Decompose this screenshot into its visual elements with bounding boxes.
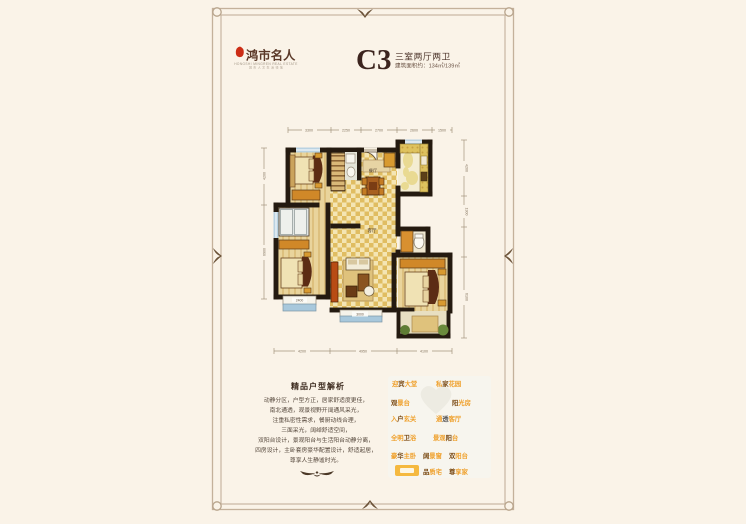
svg-text:通透客厅: 通透客厅: [436, 414, 462, 423]
svg-text:四房设计，主卧套房豪华配置设计，舒适起居，: 四房设计，主卧套房豪华配置设计，舒适起居，: [255, 446, 377, 454]
svg-text:城 市 人 文 生 活 领 地: 城 市 人 文 生 活 领 地: [249, 65, 283, 70]
svg-text:三面采光，阔绰舒适空间，: 三面采光，阔绰舒适空间，: [281, 426, 351, 434]
svg-text:注重私密性需求，餐厨动线合理，: 注重私密性需求，餐厨动线合理，: [273, 416, 360, 424]
svg-text:4200: 4200: [298, 349, 306, 353]
svg-text:入户玄关: 入户玄关: [391, 414, 417, 423]
svg-text:6900: 6900: [262, 248, 266, 256]
svg-text:建筑面积约：134㎡/139㎡: 建筑面积约：134㎡/139㎡: [395, 62, 460, 70]
svg-text:1500: 1500: [438, 128, 446, 132]
svg-text:南北通透，观景视野开阔通风采光，: 南北通透，观景视野开阔通风采光，: [270, 406, 363, 414]
svg-text:1300: 1300: [464, 208, 468, 216]
svg-text:3000: 3000: [356, 313, 364, 317]
svg-text:迎宾大堂: 迎宾大堂: [392, 379, 418, 388]
svg-text:2400: 2400: [296, 299, 304, 303]
svg-text:餐厅: 餐厅: [369, 167, 377, 174]
svg-text:鸿市名人: 鸿市名人: [246, 48, 296, 63]
svg-text:2250: 2250: [342, 128, 350, 132]
svg-text:尊享人生静谧时光。: 尊享人生静谧时光。: [290, 456, 342, 464]
svg-text:2600: 2600: [410, 128, 418, 132]
svg-text:双阳台设计，景观阳台与生活阳台动静分离，: 双阳台设计，景观阳台与生活阳台动静分离，: [258, 436, 374, 444]
svg-text:全明卫浴: 全明卫浴: [390, 433, 417, 442]
svg-text:景观阳台: 景观阳台: [433, 433, 458, 442]
svg-text:品质宅: 品质宅: [423, 467, 443, 476]
svg-text:4200: 4200: [262, 172, 266, 180]
svg-text:私家花园: 私家花园: [436, 379, 461, 388]
svg-text:4200: 4200: [464, 164, 468, 172]
svg-text:客厅: 客厅: [368, 227, 377, 234]
svg-text:三室两厅两卫: 三室两厅两卫: [395, 51, 451, 62]
svg-text:3300: 3300: [305, 128, 313, 132]
svg-text:C3: C3: [356, 44, 391, 76]
svg-text:2700: 2700: [375, 128, 383, 132]
svg-text:4950: 4950: [359, 349, 367, 353]
svg-text:阔景窗: 阔景窗: [423, 451, 442, 460]
svg-text:4100: 4100: [420, 349, 428, 353]
svg-text:豪华主卧: 豪华主卧: [391, 451, 417, 460]
svg-text:观景台: 观景台: [391, 398, 410, 407]
svg-text:阳光房: 阳光房: [452, 398, 471, 407]
svg-text:6100: 6100: [464, 293, 468, 301]
svg-text:动静分区，户型方正，居家舒适度更佳，: 动静分区，户型方正，居家舒适度更佳，: [264, 396, 368, 404]
svg-text:尊享家: 尊享家: [449, 467, 469, 476]
svg-text:双阳台: 双阳台: [449, 451, 468, 460]
svg-text:精品户型解析: 精品户型解析: [291, 381, 345, 391]
